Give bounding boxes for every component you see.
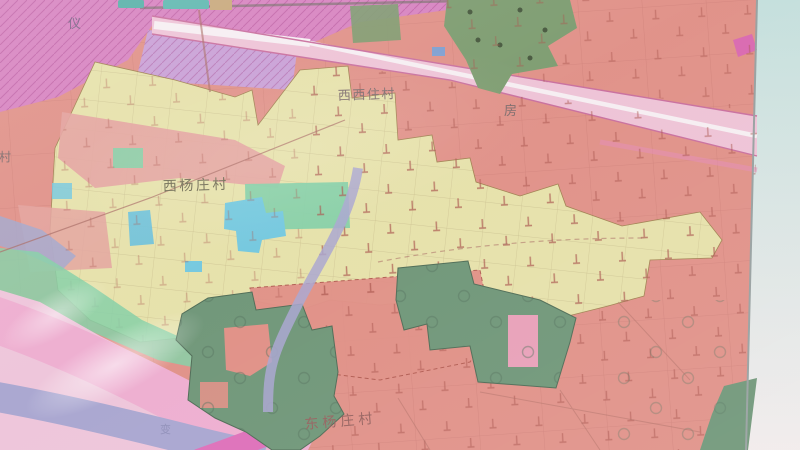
photo-sheen-overlay [0, 0, 800, 450]
map-sheet: 仪 西西住村 房 西杨庄村 腾村 东杨庄村 变 [0, 0, 800, 450]
map-canvas: 仪 西西住村 房 西杨庄村 腾村 东杨庄村 变 [0, 0, 800, 450]
photo-of-planning-map: 仪 西西住村 房 西杨庄村 腾村 东杨庄村 变 [0, 0, 800, 450]
